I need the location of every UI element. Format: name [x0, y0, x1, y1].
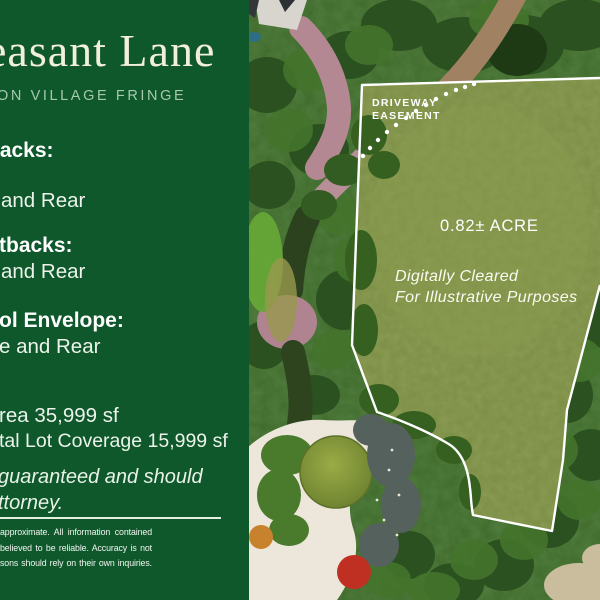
setbacks2-value: and Rear: [1, 260, 85, 284]
flyer: easant Lane ON VILLAGE FRINGE backs: and…: [0, 0, 600, 600]
acreage-label: 0.82± ACRE: [440, 217, 539, 235]
cleared-note-line2: For Illustrative Purposes: [395, 289, 578, 306]
disclaimer-line2: believed to be reliable. Accuracy is not: [0, 543, 152, 553]
pool-envelope-heading: ol Envelope:: [0, 309, 124, 333]
setbacks-value: and Rear: [1, 189, 85, 213]
disclaimer-line3: sons should rely on their own inquiries.: [0, 558, 152, 568]
property-subtitle: ON VILLAGE FRINGE: [0, 88, 186, 104]
legal-note-line1: guaranteed and should: [0, 466, 203, 489]
easement-label-line1: DRIVEWAY: [372, 97, 437, 109]
divider-line: [0, 517, 221, 519]
orange-bush: [249, 525, 273, 549]
driveway-shaded-lower: [293, 352, 301, 424]
lot-coverage-stat: tal Lot Coverage 15,999 sf: [0, 430, 228, 453]
setbacks2-heading: tbacks:: [0, 234, 73, 258]
aerial-photo: DRIVEWAY EASEMENT 0.82± ACRE Digitally C…: [249, 0, 600, 600]
setbacks-heading: backs:: [0, 139, 54, 163]
disclaimer-line1: approximate. All information contained: [0, 527, 152, 537]
round-bush: [300, 436, 372, 508]
legal-note-line2: ttorney.: [0, 492, 63, 515]
info-panel: easant Lane ON VILLAGE FRINGE backs: and…: [0, 0, 249, 600]
aerial-photo-svg: DRIVEWAY EASEMENT 0.82± ACRE Digitally C…: [249, 0, 600, 600]
lot-area-stat: rea 35,999 sf: [0, 404, 119, 428]
red-bush: [337, 555, 371, 589]
cleared-note-line1: Digitally Cleared: [395, 268, 519, 285]
easement-label-line2: EASEMENT: [372, 110, 441, 122]
pool-envelope-value: e and Rear: [0, 335, 100, 359]
olive-patch: [265, 258, 297, 342]
property-title: easant Lane: [0, 24, 215, 77]
